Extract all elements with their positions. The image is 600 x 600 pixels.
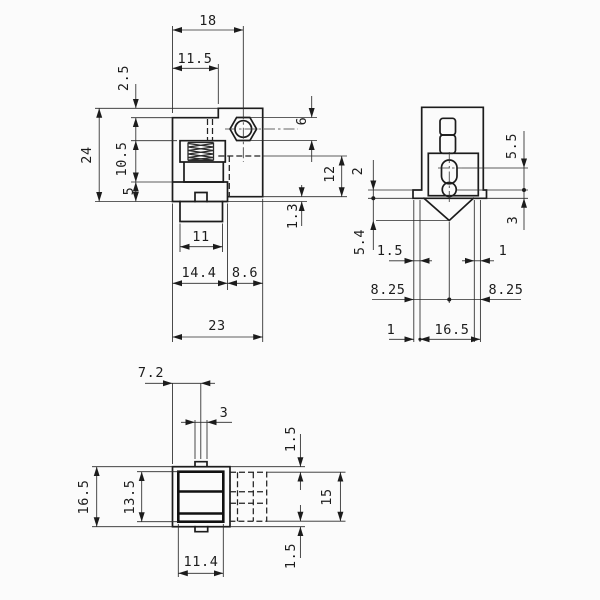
dim-bottom-tab-width: 3 (220, 405, 229, 421)
terminal-block (180, 202, 223, 222)
dim-front-top-width: 18 (199, 13, 216, 29)
dim-bottom-bottom-clearance: 1.5 (283, 543, 299, 569)
dim-front-terminal-width: 11 (192, 229, 209, 245)
dim-front-nut-size: 6 (294, 117, 310, 126)
side-dimension-lines (371, 131, 526, 341)
side-slot-lower (440, 135, 456, 153)
dim-front-recess-height: 12 (322, 165, 338, 182)
dim-side-hole-spacing: 5.5 (504, 133, 520, 159)
dim-side-pin-length: 5.4 (352, 229, 368, 255)
spring-coil (188, 143, 214, 161)
bottom-body-outline (173, 467, 231, 527)
dim-front-overall-height: 24 (79, 146, 95, 163)
dim-front-base-height: 5 (121, 187, 137, 196)
terminal-pin-taper (424, 198, 473, 220)
dim-side-center-left: 8.25 (371, 282, 406, 298)
dim-side-step-height: 2 (350, 167, 366, 176)
dim-bottom-contact-height: 13.5 (122, 480, 138, 515)
bottom-dimension-lines (97, 383, 341, 573)
bottom-view: 7.2 3 16.5 13.5 11.4 1.5 15 1.5 (76, 365, 346, 577)
dim-front-right-width: 8.6 (232, 265, 258, 281)
front-dimension-lines (99, 30, 342, 337)
front-extension-lines (95, 26, 347, 342)
dim-side-hole-to-bottom: 3 (505, 216, 521, 225)
spring-housing (180, 141, 225, 182)
dim-front-spring-height: 10.5 (114, 142, 130, 177)
dim-side-body-width: 16.5 (435, 322, 470, 338)
side-view: 5.5 3 2 5.4 1.5 1 8.25 8.25 1 16.5 (350, 107, 528, 342)
dim-front-left-width: 14.4 (182, 265, 217, 281)
dim-bottom-top-clearance: 1.5 (283, 426, 299, 452)
dim-front-step-width: 11.5 (178, 51, 213, 67)
dim-side-left-foot: 1.5 (377, 243, 403, 259)
dim-front-step-height: 2.5 (116, 65, 132, 91)
dim-front-bottom-lip: 1.3 (285, 203, 301, 229)
flange-notch (195, 193, 207, 202)
technical-drawing: 18 11.5 2.5 24 10.5 5 6 12 1.3 11 14.4 8… (0, 0, 600, 600)
dim-side-base-offset: 1 (387, 322, 396, 338)
dim-bottom-tab-offset: 7.2 (138, 365, 164, 381)
front-view: 18 11.5 2.5 24 10.5 5 6 12 1.3 11 14.4 8… (79, 13, 347, 342)
contact-block-bands (178, 492, 223, 514)
bottom-hidden-cavity (230, 472, 267, 521)
dim-side-right-foot: 1 (499, 243, 508, 259)
dim-bottom-overall-height: 16.5 (76, 480, 92, 515)
dim-side-center-right: 8.25 (489, 282, 524, 298)
side-inner-box (428, 153, 478, 195)
dim-bottom-cavity-height: 15 (319, 488, 335, 505)
front-centerlines (225, 108, 298, 162)
dim-front-overall-width: 23 (208, 318, 225, 334)
dim-bottom-contact-width: 11.4 (184, 554, 219, 570)
side-slot-upper (440, 118, 456, 135)
